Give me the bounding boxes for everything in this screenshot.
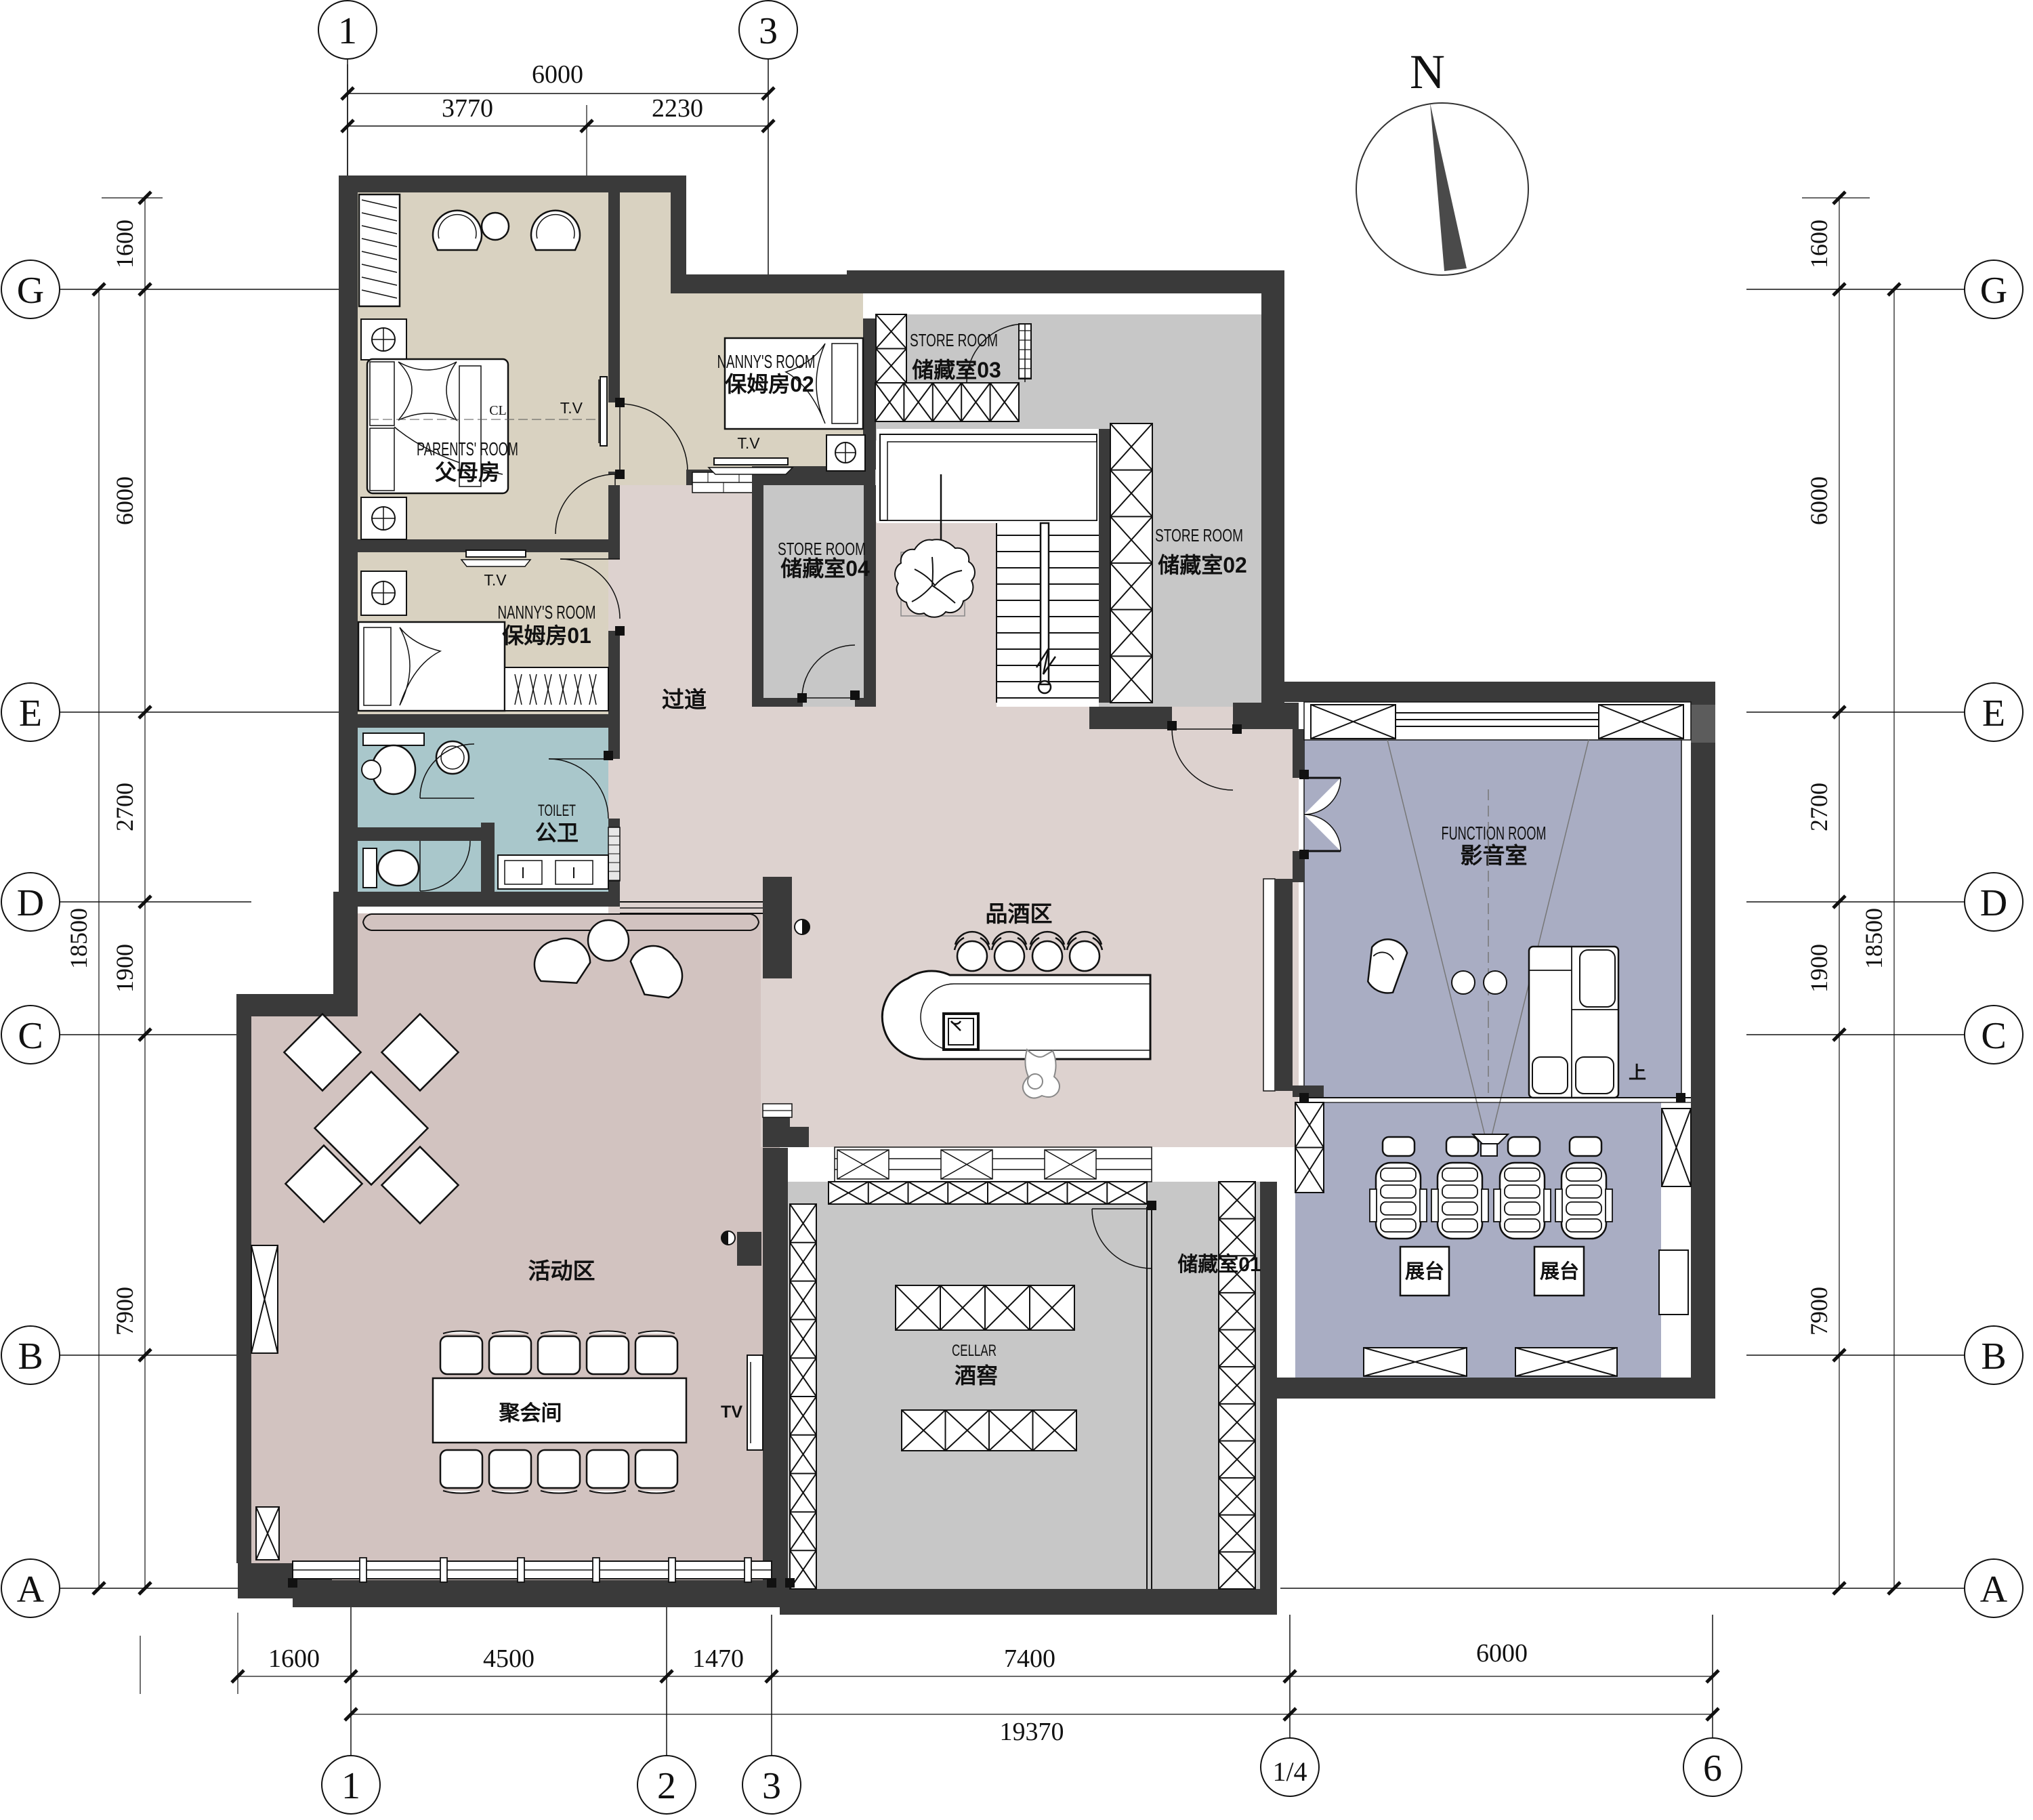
svg-text:STORE ROOM: STORE ROOM (1155, 525, 1243, 545)
svg-text:公卫: 公卫 (535, 821, 579, 845)
svg-text:7400: 7400 (1004, 1645, 1055, 1673)
svg-text:父母房: 父母房 (435, 460, 500, 484)
svg-text:7900: 7900 (1805, 1287, 1832, 1336)
svg-text:7900: 7900 (111, 1287, 138, 1336)
svg-text:19370: 19370 (1000, 1718, 1064, 1746)
svg-text:储藏室04: 储藏室04 (780, 556, 870, 581)
svg-text:2700: 2700 (111, 783, 138, 831)
svg-text:G: G (1980, 270, 2007, 312)
svg-text:聚会间: 聚会间 (499, 1401, 562, 1425)
svg-text:C: C (18, 1015, 43, 1057)
svg-text:上: 上 (1629, 1062, 1646, 1083)
svg-text:PARENTS' ROOM: PARENTS' ROOM (417, 438, 518, 459)
svg-text:TV: TV (721, 1403, 742, 1422)
svg-text:储藏室03: 储藏室03 (912, 358, 1001, 382)
svg-text:E: E (19, 692, 42, 735)
svg-text:T.V: T.V (484, 571, 507, 589)
svg-text:过道: 过道 (662, 687, 707, 712)
svg-text:1/4: 1/4 (1272, 1756, 1307, 1787)
svg-text:A: A (1980, 1569, 2008, 1611)
svg-text:活动区: 活动区 (528, 1258, 595, 1283)
svg-text:D: D (1980, 882, 2007, 924)
svg-text:3: 3 (762, 1765, 781, 1807)
svg-text:N: N (1410, 45, 1445, 99)
svg-text:B: B (18, 1336, 43, 1378)
svg-text:T.V: T.V (737, 434, 760, 452)
svg-text:1600: 1600 (1805, 220, 1832, 268)
svg-text:T.V: T.V (560, 399, 583, 417)
svg-text:1: 1 (341, 1765, 360, 1807)
svg-text:6000: 6000 (1476, 1639, 1528, 1668)
svg-text:1900: 1900 (1805, 944, 1832, 993)
svg-text:6: 6 (1703, 1747, 1722, 1790)
svg-text:6000: 6000 (1805, 476, 1832, 525)
svg-text:B: B (1981, 1336, 2006, 1378)
svg-text:CL: CL (489, 403, 507, 418)
svg-text:G: G (17, 270, 44, 312)
svg-text:18500: 18500 (1860, 908, 1887, 969)
svg-text:2: 2 (657, 1765, 676, 1807)
svg-text:储藏室02: 储藏室02 (1158, 553, 1247, 577)
svg-text:6000: 6000 (111, 476, 138, 525)
svg-text:18500: 18500 (65, 908, 92, 969)
svg-text:TOILET: TOILET (538, 802, 576, 820)
svg-text:1600: 1600 (268, 1645, 320, 1673)
svg-text:D: D (17, 882, 44, 924)
svg-text:影音室: 影音室 (1461, 843, 1528, 868)
svg-text:2230: 2230 (652, 94, 703, 123)
svg-text:品酒区: 品酒区 (986, 901, 1053, 926)
svg-text:保姆房01: 保姆房01 (502, 623, 591, 648)
svg-text:保姆房02: 保姆房02 (725, 372, 814, 396)
svg-text:储藏室01: 储藏室01 (1177, 1253, 1261, 1276)
svg-text:NANNY'S ROOM: NANNY'S ROOM (717, 351, 816, 372)
svg-text:4500: 4500 (483, 1645, 535, 1673)
svg-text:CELLAR: CELLAR (952, 1342, 997, 1360)
svg-text:3: 3 (759, 10, 778, 52)
svg-text:展台: 展台 (1540, 1260, 1579, 1283)
svg-text:1600: 1600 (111, 220, 138, 268)
svg-text:2700: 2700 (1805, 783, 1832, 831)
svg-text:1: 1 (338, 10, 357, 52)
svg-text:3770: 3770 (442, 94, 493, 123)
svg-text:C: C (1981, 1015, 2006, 1057)
svg-text:展台: 展台 (1405, 1260, 1444, 1283)
svg-text:1470: 1470 (692, 1645, 744, 1673)
svg-text:6000: 6000 (532, 60, 583, 89)
svg-text:NANNY'S ROOM: NANNY'S ROOM (498, 602, 596, 623)
svg-text:酒窖: 酒窖 (955, 1363, 998, 1388)
svg-text:1900: 1900 (111, 944, 138, 993)
svg-text:STORE ROOM: STORE ROOM (910, 330, 998, 350)
svg-text:FUNCTION ROOM: FUNCTION ROOM (1442, 823, 1547, 844)
svg-text:A: A (17, 1569, 45, 1611)
svg-text:E: E (1982, 692, 2005, 735)
